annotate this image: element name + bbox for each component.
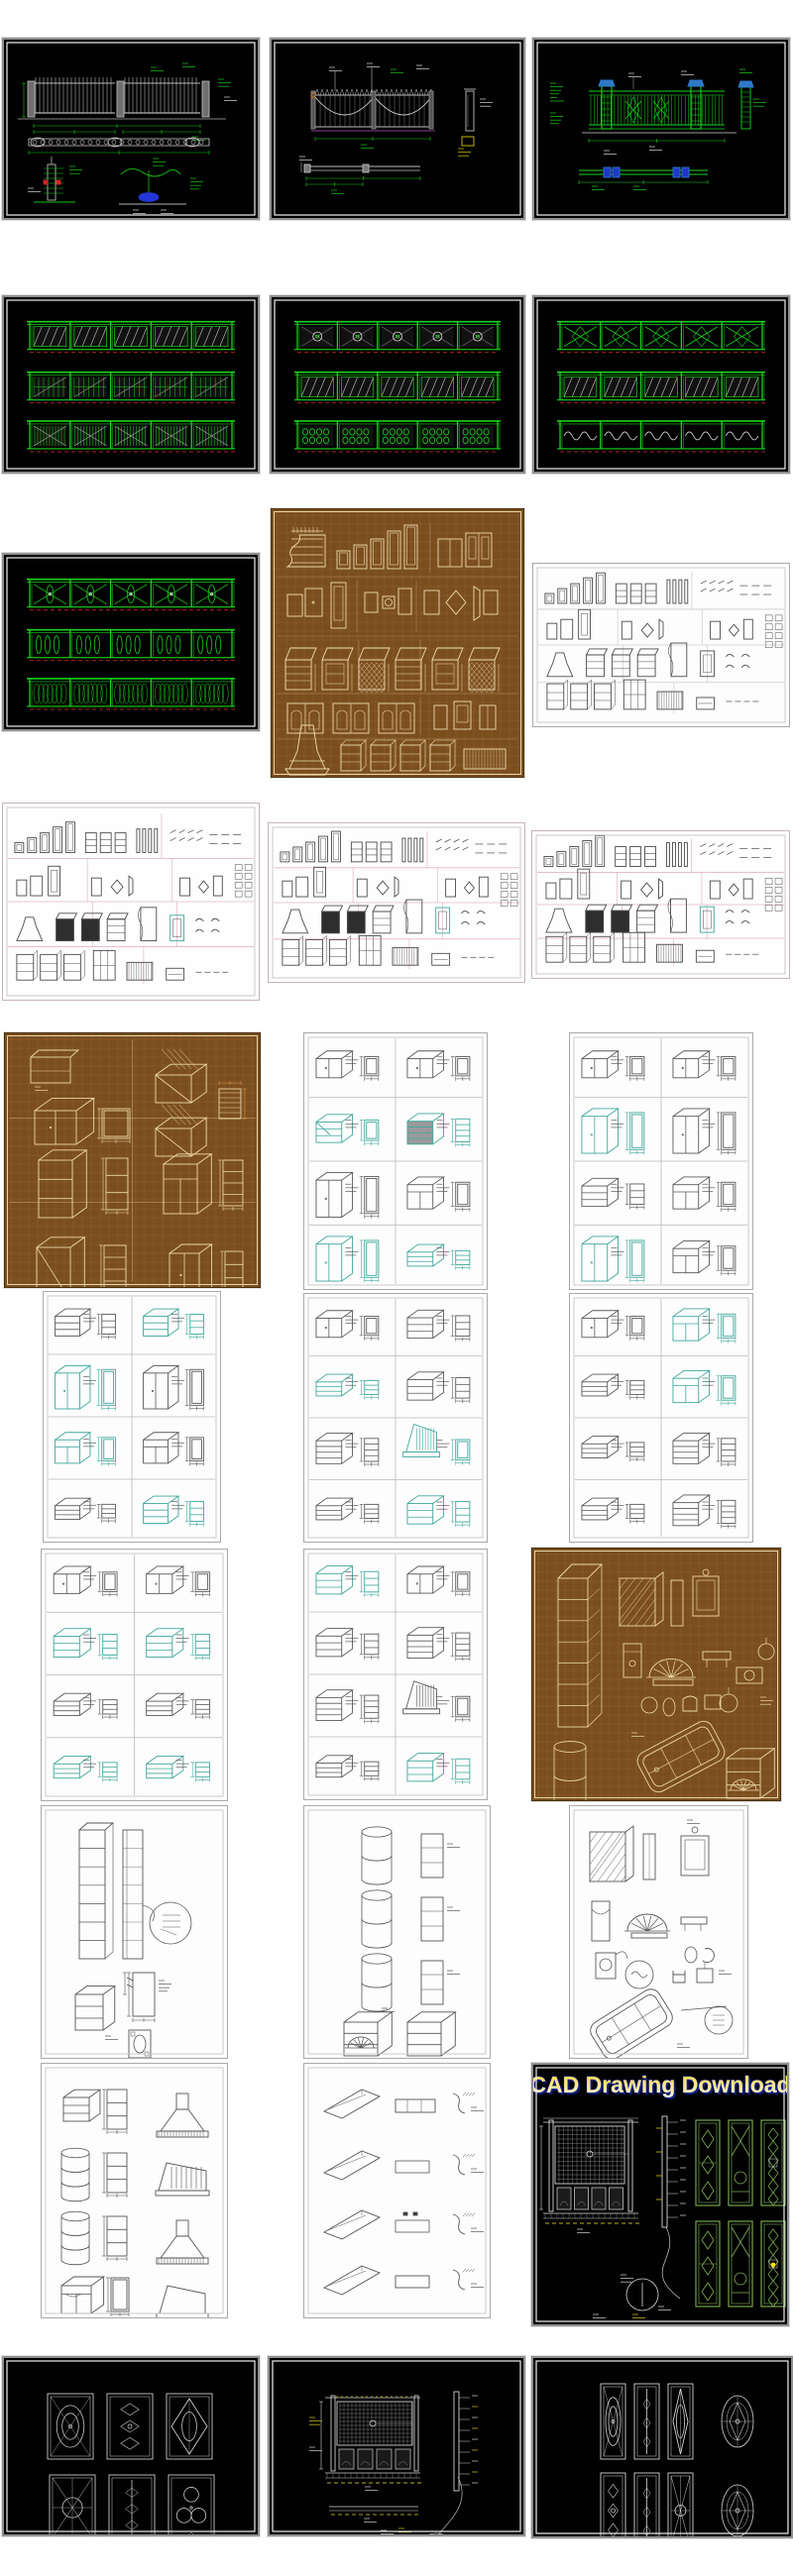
molding-profile-sheet-drawing: [304, 2064, 490, 2317]
cabinet-door-library-grey-drawing: [533, 564, 789, 726]
thumb-decor-glass-2: [531, 2356, 793, 2538]
thumb-railings-4: [2, 553, 260, 731]
railing-designs-sheet-3-drawing: [534, 297, 788, 472]
thumb-iso-grid-5: [569, 1293, 753, 1543]
corner-shelf-units-sheet-drawing: [304, 1806, 490, 2058]
railing-designs-sheet-4-drawing: [4, 555, 258, 729]
thumb-molding-profiles: [303, 2063, 491, 2318]
thumb-doors-pink-3: [531, 830, 790, 979]
iron-fence-gate-detail-sheet-drawing: [4, 40, 258, 218]
thumb-cad-download: CAD Drawing DownloadCAD Drawing Download: [531, 2063, 789, 2326]
kitchen-bath-fixtures-brown-drawing: [532, 1549, 780, 1800]
thumb-fixtures-white: [569, 1805, 748, 2059]
isometric-cabinets-grid-4-drawing: [304, 1294, 487, 1542]
thumb-railings-1: [2, 295, 260, 474]
railing-designs-sheet-1-drawing: [4, 297, 258, 472]
cabinet-door-library-brown-drawing: [272, 509, 523, 777]
isometric-cabinets-grid-1-drawing: [304, 1033, 487, 1289]
thumb-iso-grid-7: [303, 1549, 488, 1800]
thumb-railings-2: [270, 295, 525, 474]
thumb-shelving-detail: [41, 1805, 228, 2059]
thumb-railings-3: [532, 295, 790, 474]
thumb-iso-grid-3: [43, 1291, 221, 1543]
green-fence-elevation-sheet-drawing: [534, 40, 788, 218]
railing-designs-sheet-2-drawing: [272, 297, 523, 472]
lattice-screen-detail-sheet-drawing: [270, 2358, 523, 2534]
thumb-iso-grid-6: [41, 1549, 228, 1801]
cad-collage: CAD Drawing DownloadCAD Drawing Download: [0, 0, 793, 2576]
isometric-cabinets-grid-6-drawing: [42, 1550, 227, 1800]
thumb-doors-grey: [532, 563, 790, 727]
thumb-fence-detail-1: [2, 38, 260, 220]
thumb-doors-brown: [271, 508, 524, 778]
thumb-iso-grid-4: [303, 1293, 488, 1543]
cad-download-title: CAD Drawing Download: [533, 2072, 787, 2097]
thumb-iso-grid-1: [303, 1032, 488, 1290]
tall-shelving-detail-sheet-drawing: [42, 1806, 227, 2058]
thumb-fence-detail-3: [532, 38, 790, 220]
isometric-cabinets-brown-drawing: [5, 1033, 260, 1287]
cabinet-door-library-pink-1-drawing: [3, 804, 259, 1000]
isometric-cabinets-grid-3-drawing: [44, 1292, 220, 1542]
thumb-iso-brown: [4, 1032, 261, 1288]
thumb-fence-detail-2: [270, 38, 525, 220]
thumb-lattice-detail: [268, 2356, 525, 2536]
thumb-iso-grid-2: [569, 1032, 753, 1290]
kitchen-bath-fixtures-white-drawing: [570, 1806, 747, 2058]
thumb-doors-pink-2: [268, 822, 525, 983]
thumb-decor-glass-1: [2, 2356, 260, 2536]
isometric-cabinets-grid-7-drawing: [304, 1550, 487, 1799]
corner-cabinets-range-hoods-drawing: [42, 2064, 227, 2317]
fence-swag-mesh-detail-sheet-drawing: [272, 40, 523, 218]
thumb-doors-pink-1: [2, 803, 260, 1001]
thumb-fixtures-brown: [531, 1548, 781, 1801]
decorative-glass-panels-2-drawing: [533, 2358, 791, 2536]
thumb-corner-shelves: [303, 1805, 491, 2059]
thumb-corner-hoods: [41, 2063, 228, 2318]
isometric-cabinets-grid-5-drawing: [570, 1294, 752, 1542]
decorative-glass-panels-1-drawing: [4, 2358, 258, 2534]
cabinet-door-library-pink-3-drawing: [532, 831, 789, 978]
cad-drawing-download-cover-drawing: CAD Drawing DownloadCAD Drawing Download: [533, 2065, 787, 2324]
isometric-cabinets-grid-2-drawing: [570, 1033, 752, 1289]
cabinet-door-library-pink-2-drawing: [269, 823, 524, 982]
